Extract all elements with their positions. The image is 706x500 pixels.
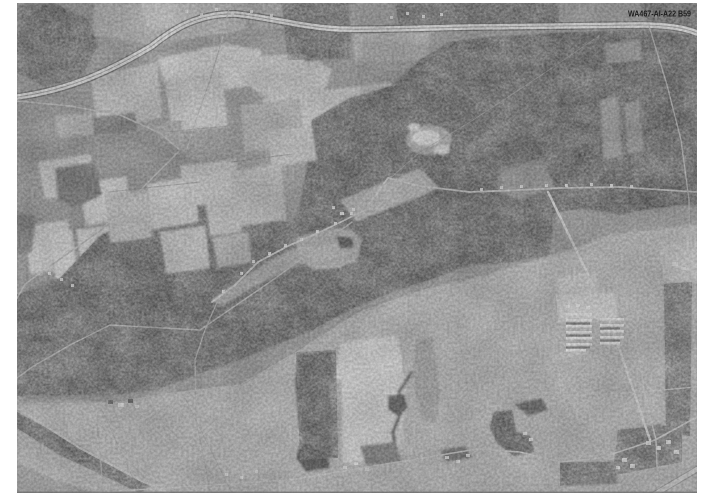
svg-text:WA467-AI-A22 B59: WA467-AI-A22 B59 — [628, 10, 691, 19]
